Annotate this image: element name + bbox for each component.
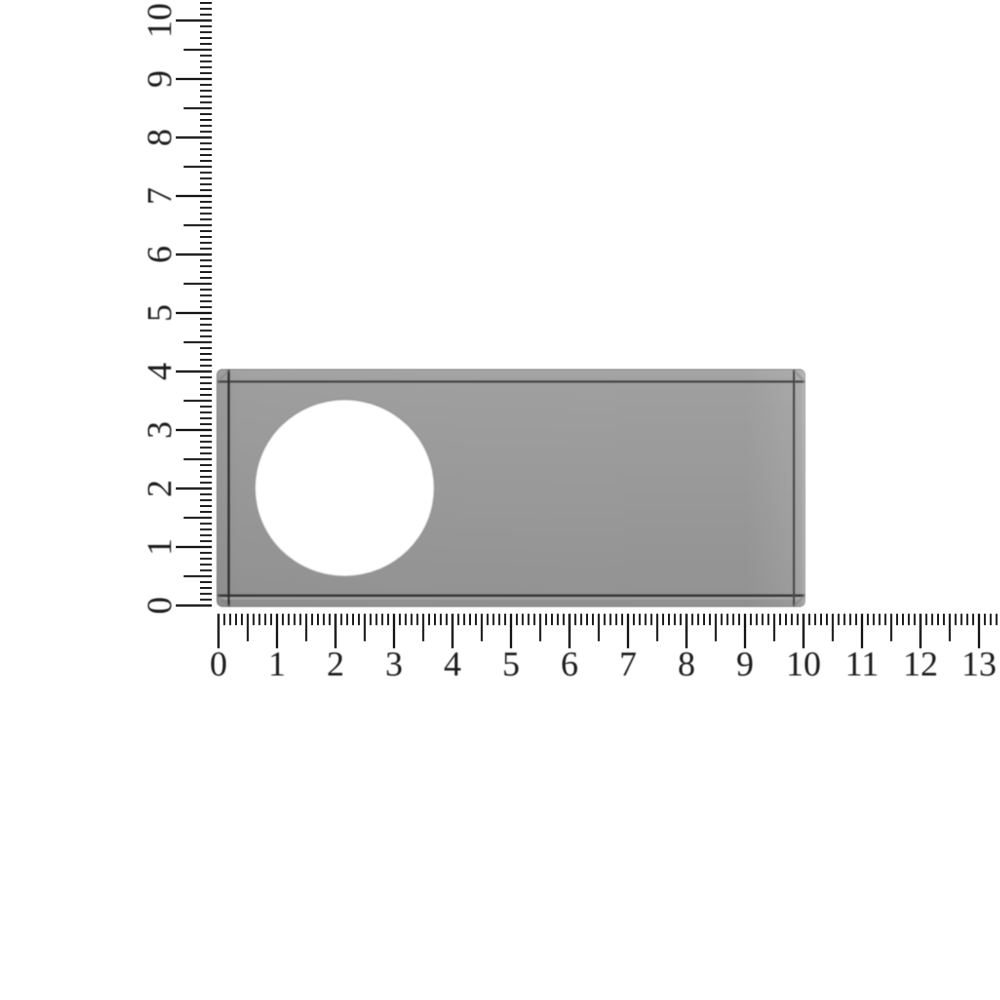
svg-text:9: 9 — [140, 70, 179, 88]
svg-text:11: 11 — [845, 645, 879, 684]
svg-text:8: 8 — [140, 129, 179, 147]
svg-text:1: 1 — [268, 645, 286, 684]
svg-text:13: 13 — [962, 645, 997, 684]
svg-text:7: 7 — [619, 645, 637, 684]
svg-text:0: 0 — [140, 597, 179, 615]
svg-text:5: 5 — [140, 304, 179, 322]
svg-text:3: 3 — [140, 421, 179, 439]
svg-text:8: 8 — [678, 645, 696, 684]
svg-text:10: 10 — [140, 3, 179, 38]
svg-text:12: 12 — [903, 645, 938, 684]
svg-text:6: 6 — [140, 246, 179, 264]
svg-text:5: 5 — [502, 645, 520, 684]
svg-text:7: 7 — [140, 187, 179, 205]
svg-text:9: 9 — [736, 645, 754, 684]
svg-text:6: 6 — [561, 645, 579, 684]
svg-text:4: 4 — [140, 363, 179, 381]
svg-text:1: 1 — [140, 538, 179, 556]
svg-text:2: 2 — [140, 480, 179, 498]
svg-text:0: 0 — [210, 645, 228, 684]
svg-text:2: 2 — [327, 645, 345, 684]
svg-text:4: 4 — [444, 645, 462, 684]
svg-text:3: 3 — [385, 645, 403, 684]
svg-text:10: 10 — [786, 645, 821, 684]
